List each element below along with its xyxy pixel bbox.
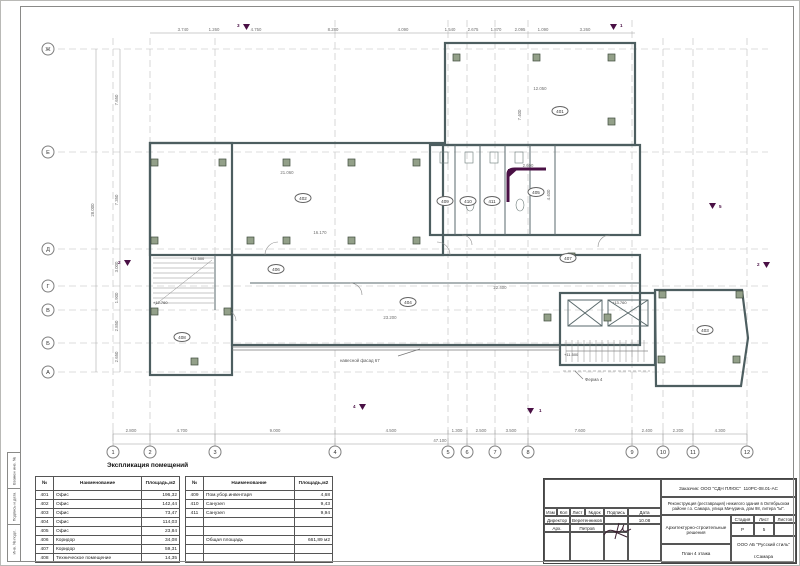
marker-label: 3 [237, 23, 240, 28]
room-number: 409 [441, 199, 449, 204]
grid-lines [58, 20, 768, 446]
dim-label: 1.540 [445, 27, 456, 32]
truss-note: Ферма 4 [585, 377, 603, 382]
cell: Коридор [54, 536, 142, 545]
cell: Офис [54, 509, 142, 518]
dim-label: 7.650 [114, 94, 119, 105]
dim-label: 12.050 [533, 86, 547, 91]
axis-label: 7 [493, 450, 496, 456]
col-izm: Изм [544, 508, 557, 516]
marker-label: 5 [719, 204, 722, 209]
axis-label: 4 [333, 450, 336, 456]
cell: 411 [186, 509, 204, 518]
dim-label: 2.500 [476, 428, 487, 433]
dims-top: 3.740 1.260 4.750 8.280 4.090 1.540 2.67… [178, 27, 591, 32]
cell: 401 [36, 491, 54, 500]
room-number: 410 [464, 199, 472, 204]
explication-section: Экспликация помещений [35, 462, 188, 472]
company-city: г.Самара [732, 551, 795, 561]
signature [599, 517, 639, 543]
marker-label: 2 [757, 262, 760, 267]
cell: 73,47 [142, 509, 180, 518]
dim-label: 7.400 [517, 109, 522, 120]
col-ndok: №док [585, 508, 604, 516]
facade-line [232, 347, 560, 356]
table-header-row: № Наименование Площадь,м2 [186, 477, 333, 491]
cell: 23,84 [142, 527, 180, 536]
drawing-sheet: 1 2 3 4 5 6 7 8 9 10 11 12 Ж Е Д Г В Б А [0, 0, 800, 566]
section-name: Архитектурно-строительные решения [661, 515, 731, 544]
marker-label: 1 [539, 408, 542, 413]
room-number: 404 [404, 300, 412, 305]
stage-header: Стадия [731, 515, 754, 523]
elevation-label: +11.500 [564, 352, 579, 357]
company-name: ООО АБ "Русский стиль" [732, 537, 795, 551]
room-number: 411 [488, 199, 496, 204]
table-row [186, 518, 333, 527]
room-number: 405 [532, 190, 540, 195]
elevation-label: +11.500 [190, 256, 205, 261]
elevation-label: +13.760 [612, 300, 627, 305]
dim-label: 16.170 [313, 230, 327, 235]
axis-label: А [46, 370, 50, 376]
cell: Техническое помещение [54, 554, 142, 563]
frame-field-label: Подпись и дата [12, 492, 17, 521]
cell: 14,35 [142, 554, 180, 563]
cell: Санузел [204, 500, 295, 509]
cell: Офис [54, 500, 142, 509]
dim-label: 3.260 [580, 27, 591, 32]
table-row: 401Офис196,32 [36, 491, 180, 500]
floor-plan: 1 2 3 4 5 6 7 8 9 10 11 12 Ж Е Д Г В Б А [0, 0, 800, 462]
project-description: Реконструкция (реставрация) нежилого зда… [661, 497, 796, 515]
cell: 408 [36, 554, 54, 563]
list-header: Лист [754, 515, 774, 523]
axis-label: 1 [111, 450, 114, 456]
cell: 403 [36, 509, 54, 518]
marker-label: 4 [353, 404, 356, 409]
axis-label: 6 [465, 450, 468, 456]
cell: 4,68 [295, 491, 333, 500]
cell: Пом.убор.инвентаря [204, 491, 295, 500]
cell: Санузел [204, 509, 295, 518]
room-number: 406 [272, 267, 280, 272]
table-row: 405Офис23,84 [36, 527, 180, 536]
cell: 114,03 [142, 518, 180, 527]
marker-label: 2 [118, 260, 121, 265]
cell: Офис [54, 491, 142, 500]
dim-total: 47.100 [433, 438, 447, 443]
stage-value: Р [731, 523, 754, 536]
client-label: Заказчик: ООО "СДН ПЛЮС" [679, 486, 741, 491]
total-value: 661,89 м2 [295, 536, 333, 545]
cell: 402 [36, 500, 54, 509]
table-row [186, 554, 333, 563]
axis-label: 11 [690, 450, 696, 456]
table-row: 403Офис73,47 [36, 509, 180, 518]
sheet-number: 5 [754, 523, 774, 536]
dim-label: 4.090 [398, 27, 409, 32]
col-header: № [186, 477, 204, 491]
dim-label: 22.400 [493, 285, 507, 290]
axis-label: Д [46, 247, 50, 253]
elevation-marks: +11.500 +12.760 +13.760 +11.500 [153, 256, 627, 357]
dim-label: 2.400 [642, 428, 653, 433]
total-label: Общая площадь [204, 536, 295, 545]
listov-header: Листов [774, 515, 796, 523]
total-row: Общая площадь661,89 м2 [186, 536, 333, 545]
title-block: Заказчик: ООО "СДН ПЛЮС" 110РС-08.01-АС … [543, 478, 797, 564]
frame-field-label: Взамен инв. № [12, 456, 17, 484]
dimension-lines [96, 33, 747, 448]
col-header: Наименование [54, 477, 142, 491]
axis-label: В [46, 308, 50, 314]
axis-label: Б [46, 341, 50, 347]
axis-labels-bottom: 1 2 3 4 5 6 7 8 9 10 11 12 [111, 450, 750, 456]
dim-label: 4.400 [546, 189, 551, 200]
axis-bubbles-bottom [107, 446, 753, 458]
cell: 142,44 [142, 500, 180, 509]
role-2: Арх. [544, 524, 570, 532]
dim-label: 21.060 [280, 170, 294, 175]
dim-label: 3.740 [178, 27, 189, 32]
dim-label: 1.090 [538, 27, 549, 32]
table-row: 404Офис114,03 [36, 518, 180, 527]
table-row: 402Офис142,44 [36, 500, 180, 509]
cell: 9,43 [295, 500, 333, 509]
cell: Коридор [54, 545, 142, 554]
axis-label: 8 [526, 450, 529, 456]
door-arcs [225, 235, 610, 321]
table-row: 411Санузел9,94 [186, 509, 333, 518]
axis-label: 10 [660, 450, 666, 456]
room-number: 407 [564, 256, 572, 261]
room-number: 401 [556, 109, 564, 114]
cell: 34,08 [142, 536, 180, 545]
drawing-title: План 4 этажа [661, 544, 731, 563]
room-number: 402 [299, 196, 307, 201]
axis-label: Ж [45, 47, 51, 53]
table-row: 410Санузел9,43 [186, 500, 333, 509]
col-podpis: Подпись [604, 508, 628, 516]
axis-label: 2 [148, 450, 151, 456]
dims-left: 7.650 7.350 3.000 1.900 2.850 2.650 28.0… [90, 94, 119, 362]
table-row: 408Техническое помещение14,35 [36, 554, 180, 563]
dim-label: 7.350 [114, 194, 119, 205]
cell: 196,32 [142, 491, 180, 500]
dim-label: 23.200 [383, 315, 397, 320]
elevation-label: +12.760 [153, 300, 168, 305]
cell: 9,94 [295, 509, 333, 518]
cell: 407 [36, 545, 54, 554]
axis-label: 3 [213, 450, 216, 456]
table-row: 407Коридор59,31 [36, 545, 180, 554]
frame-left-strip: Взамен инв. № Подпись и дата Инв. № подл… [7, 452, 21, 562]
explication-title: Экспликация помещений [107, 462, 188, 469]
cell: Офис [54, 527, 142, 536]
dim-total: 28.000 [90, 203, 95, 217]
dim-label: 4.700 [177, 428, 188, 433]
facade-note: навесной фасад 67 [340, 358, 380, 363]
axis-label: 9 [630, 450, 633, 456]
col-data: Дата [628, 508, 661, 516]
cell: 59,31 [142, 545, 180, 554]
axis-label: 5 [446, 450, 449, 456]
dim-label: 1.900 [114, 292, 119, 303]
room-number: 403 [701, 328, 709, 333]
col-header: № [36, 477, 54, 491]
dim-label: 2.650 [114, 351, 119, 362]
role-1: Директор [544, 516, 570, 524]
axis-label: Е [46, 150, 50, 156]
cell: 405 [36, 527, 54, 536]
col-header: Наименование [204, 477, 295, 491]
table-row: 406Коридор34,08 [36, 536, 180, 545]
table-header-row: № Наименование Площадь,м2 [36, 477, 180, 491]
axis-bubbles-left [42, 43, 54, 378]
table-row: 409Пом.убор.инвентаря4,68 [186, 491, 333, 500]
dim-label: 7.600 [575, 428, 586, 433]
dim-label: 2.800 [126, 428, 137, 433]
dim-label: 2.850 [114, 320, 119, 331]
dims-inner: 21.060 12.050 7.400 16.170 22.400 23.200… [280, 86, 551, 320]
frame-field-label: Инв. № подл. [12, 530, 17, 555]
col-header: Площадь,м2 [142, 477, 180, 491]
dim-label: 1.300 [452, 428, 463, 433]
explication-table-right: № Наименование Площадь,м2 409Пом.убор.ин… [185, 476, 333, 563]
dim-label: 3.500 [506, 428, 517, 433]
doc-number: 110РС-08.01-АС [743, 486, 778, 491]
dims-bottom: 2.800 4.700 9.000 4.500 1.300 2.500 3.50… [126, 428, 726, 443]
dim-label: 8.280 [328, 27, 339, 32]
dim-label: 2.095 [515, 27, 526, 32]
table-row [186, 545, 333, 554]
axis-labels-left: Ж Е Д Г В Б А [45, 47, 51, 376]
cell: 404 [36, 518, 54, 527]
dim-label: 4.750 [251, 27, 262, 32]
dim-label: 2.200 [673, 428, 684, 433]
axis-label: Г [46, 284, 49, 290]
dim-label: 4.500 [386, 428, 397, 433]
dim-label: 2.600 [523, 163, 534, 168]
outer-walls [150, 43, 748, 386]
col-list: Лист [570, 508, 585, 516]
table-row [186, 527, 333, 536]
col-header: Площадь,м2 [295, 477, 333, 491]
cell: 409 [186, 491, 204, 500]
room-number: 408 [178, 335, 186, 340]
axis-label: 12 [744, 450, 750, 456]
dim-label: 1.260 [209, 27, 220, 32]
dim-label: 1.870 [491, 27, 502, 32]
cell: 406 [36, 536, 54, 545]
cell: Офис [54, 518, 142, 527]
col-kol: Кол [557, 508, 570, 516]
explication-table-left: № Наименование Площадь,м2 401Офис196,32 … [35, 476, 180, 563]
dim-label: 2.675 [468, 27, 479, 32]
highlight-room-405 [508, 169, 546, 202]
marker-label: 1 [620, 23, 623, 28]
dim-label: 4.300 [715, 428, 726, 433]
dim-label: 9.000 [270, 428, 281, 433]
cell: 410 [186, 500, 204, 509]
plan-notes: навесной фасад 67 Ферма 4 [340, 358, 603, 382]
